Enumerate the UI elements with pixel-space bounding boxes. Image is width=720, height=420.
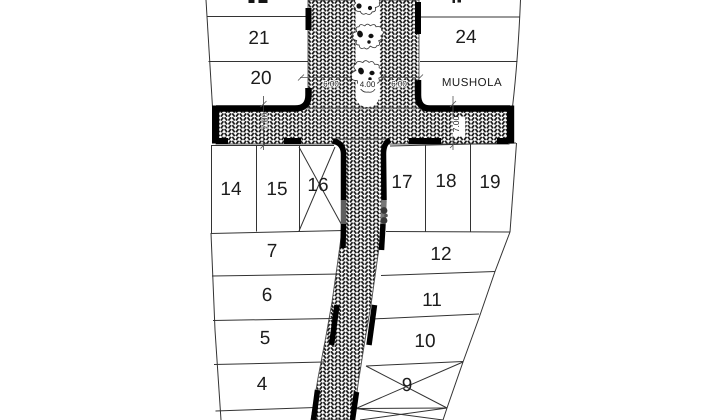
- svg-text:4: 4: [257, 374, 268, 395]
- svg-text:7: 7: [267, 241, 278, 262]
- svg-text:12: 12: [430, 244, 451, 265]
- svg-text:6: 6: [262, 285, 273, 306]
- svg-text:MUSHOLA: MUSHOLA: [442, 77, 502, 89]
- svg-text:9: 9: [402, 375, 413, 396]
- svg-text:6.00: 6.00: [323, 80, 339, 89]
- svg-text:10: 10: [414, 331, 435, 352]
- svg-text:11: 11: [422, 290, 442, 311]
- svg-text:19: 19: [479, 172, 500, 193]
- svg-text:14: 14: [220, 179, 242, 200]
- svg-text:24: 24: [455, 27, 477, 48]
- svg-text:18: 18: [435, 171, 456, 192]
- svg-text:16: 16: [307, 175, 328, 196]
- svg-text:7.00: 7.00: [451, 115, 461, 132]
- svg-text:6.00: 6.00: [391, 80, 407, 89]
- svg-text:20: 20: [250, 68, 271, 89]
- svg-text:4.00: 4.00: [360, 80, 376, 89]
- svg-text:17: 17: [391, 172, 412, 193]
- svg-text:5: 5: [260, 328, 271, 349]
- svg-text:21: 21: [248, 28, 269, 49]
- svg-text:7.00: 7.00: [260, 112, 270, 129]
- svg-text:15: 15: [266, 179, 287, 200]
